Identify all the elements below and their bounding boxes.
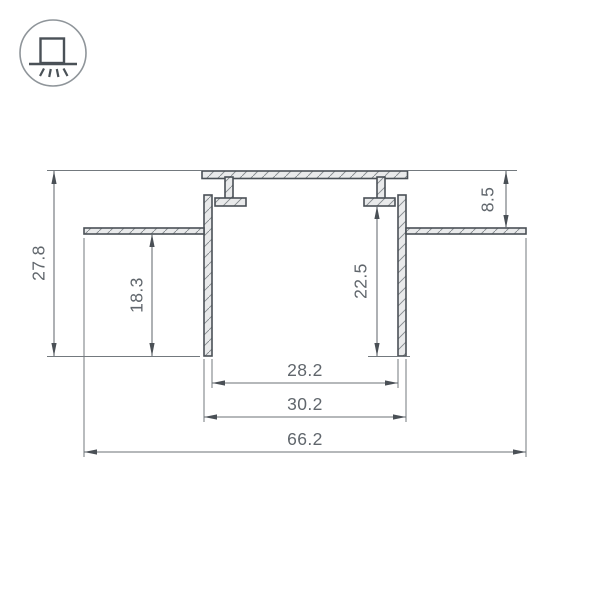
arrowhead-right <box>513 449 526 454</box>
left-stem <box>225 177 233 199</box>
arrowhead-right <box>393 414 406 419</box>
recessed-mount-icon <box>20 20 86 86</box>
arrowhead-left <box>84 449 97 454</box>
arrowhead-down <box>149 343 154 356</box>
left-stem-foot <box>215 198 246 206</box>
arrowhead-down <box>503 215 508 228</box>
icon-circle-border <box>20 20 86 86</box>
profile-section <box>84 171 526 356</box>
dim-label-overall-width: 66.2 <box>287 429 323 449</box>
dimension-overall-height: 27.8 <box>29 171 202 357</box>
arrowhead-up <box>374 206 379 219</box>
left-wall <box>204 195 212 356</box>
icon-light-rays <box>40 69 68 78</box>
dimension-inner-width: 28.2 <box>212 359 398 388</box>
dim-label-body-width: 30.2 <box>287 394 323 414</box>
profile-cross-section-drawing: 27.8 18.3 8.5 22.5 28.2 3 <box>0 0 600 600</box>
arrowhead-left <box>212 380 225 385</box>
right-stem <box>377 177 385 199</box>
left-flange <box>84 228 204 234</box>
right-flange <box>406 228 526 234</box>
dimension-left-inner-depth: 18.3 <box>127 234 155 356</box>
arrowhead-up <box>149 234 154 247</box>
dim-label-left-inner-depth: 18.3 <box>127 277 147 313</box>
dimension-recess-offset: 8.5 <box>408 171 517 229</box>
arrowhead-down <box>374 343 379 356</box>
right-wall <box>398 195 406 356</box>
arrowhead-left <box>204 414 217 419</box>
right-stem-foot <box>364 198 395 206</box>
dim-label-right-inner-depth: 22.5 <box>351 263 371 299</box>
arrowhead-up <box>51 171 56 184</box>
arrowhead-up <box>503 171 508 184</box>
dim-label-recess-offset: 8.5 <box>478 187 498 213</box>
arrowhead-down <box>51 343 56 356</box>
dim-label-inner-width: 28.2 <box>287 360 323 380</box>
dim-label-overall-height: 27.8 <box>29 245 49 281</box>
icon-profile-box <box>41 39 65 64</box>
arrowhead-right <box>385 380 398 385</box>
